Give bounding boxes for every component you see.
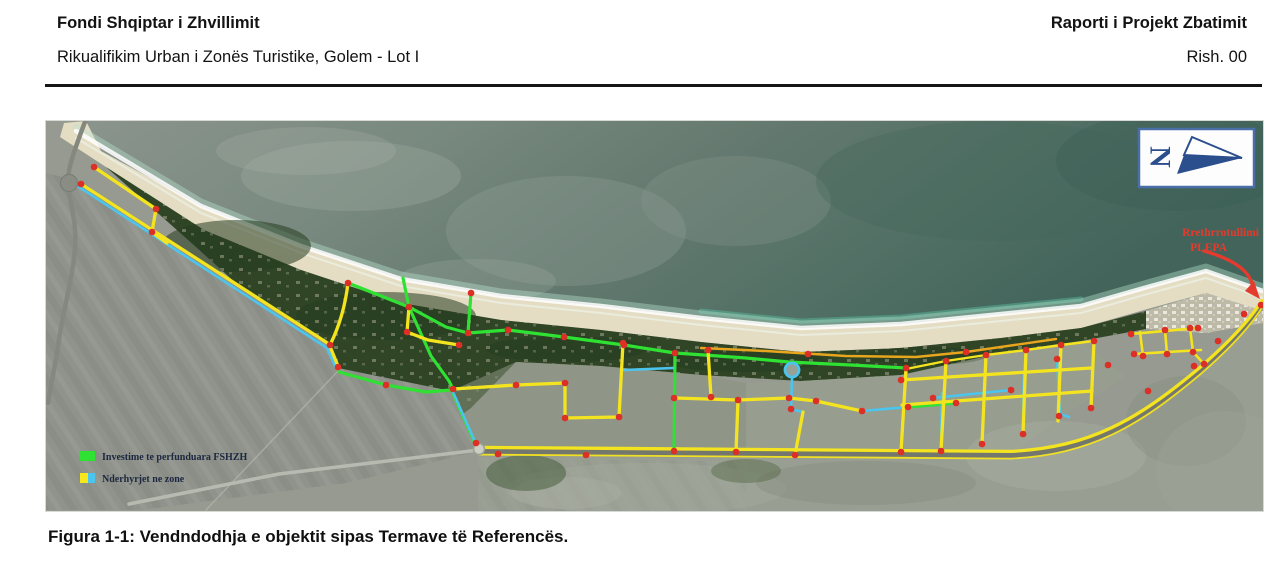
legend-swatch-interventions-cyan bbox=[88, 473, 95, 483]
location-map-figure: Rrethrrotullimi PLEPA N Investime te per… bbox=[45, 120, 1264, 512]
legend-swatch-interventions-yellow bbox=[80, 473, 88, 483]
satellite-map: Rrethrrotullimi PLEPA N Investime te per… bbox=[46, 121, 1263, 511]
roundabout-west bbox=[61, 175, 78, 192]
header-project-subtitle: Rikualifikim Urban i Zonës Turistike, Go… bbox=[57, 48, 419, 67]
header-divider bbox=[45, 84, 1262, 87]
report-page: Fondi Shqiptar i Zhvillimit Raporti i Pr… bbox=[0, 0, 1285, 565]
roundabout-center bbox=[785, 363, 799, 377]
header-report-title: Raporti i Projekt Zbatimit bbox=[1051, 14, 1247, 33]
annotation-line1: Rrethrrotullimi bbox=[1182, 227, 1260, 239]
legend-label-interventions: Nderhyrjet ne zone bbox=[102, 474, 185, 485]
north-arrow: N bbox=[1139, 129, 1254, 187]
legend-swatch-investments bbox=[80, 451, 95, 461]
legend-label-investments: Investime te perfunduara FSHZH bbox=[102, 452, 248, 463]
north-label: N bbox=[1144, 146, 1177, 168]
header-org-title: Fondi Shqiptar i Zhvillimit bbox=[57, 14, 260, 33]
header-revision: Rish. 00 bbox=[1186, 48, 1247, 67]
mid-fields bbox=[451, 362, 746, 454]
figure-caption: Figura 1-1: Vendndodhja e objektit sipas… bbox=[48, 527, 568, 547]
